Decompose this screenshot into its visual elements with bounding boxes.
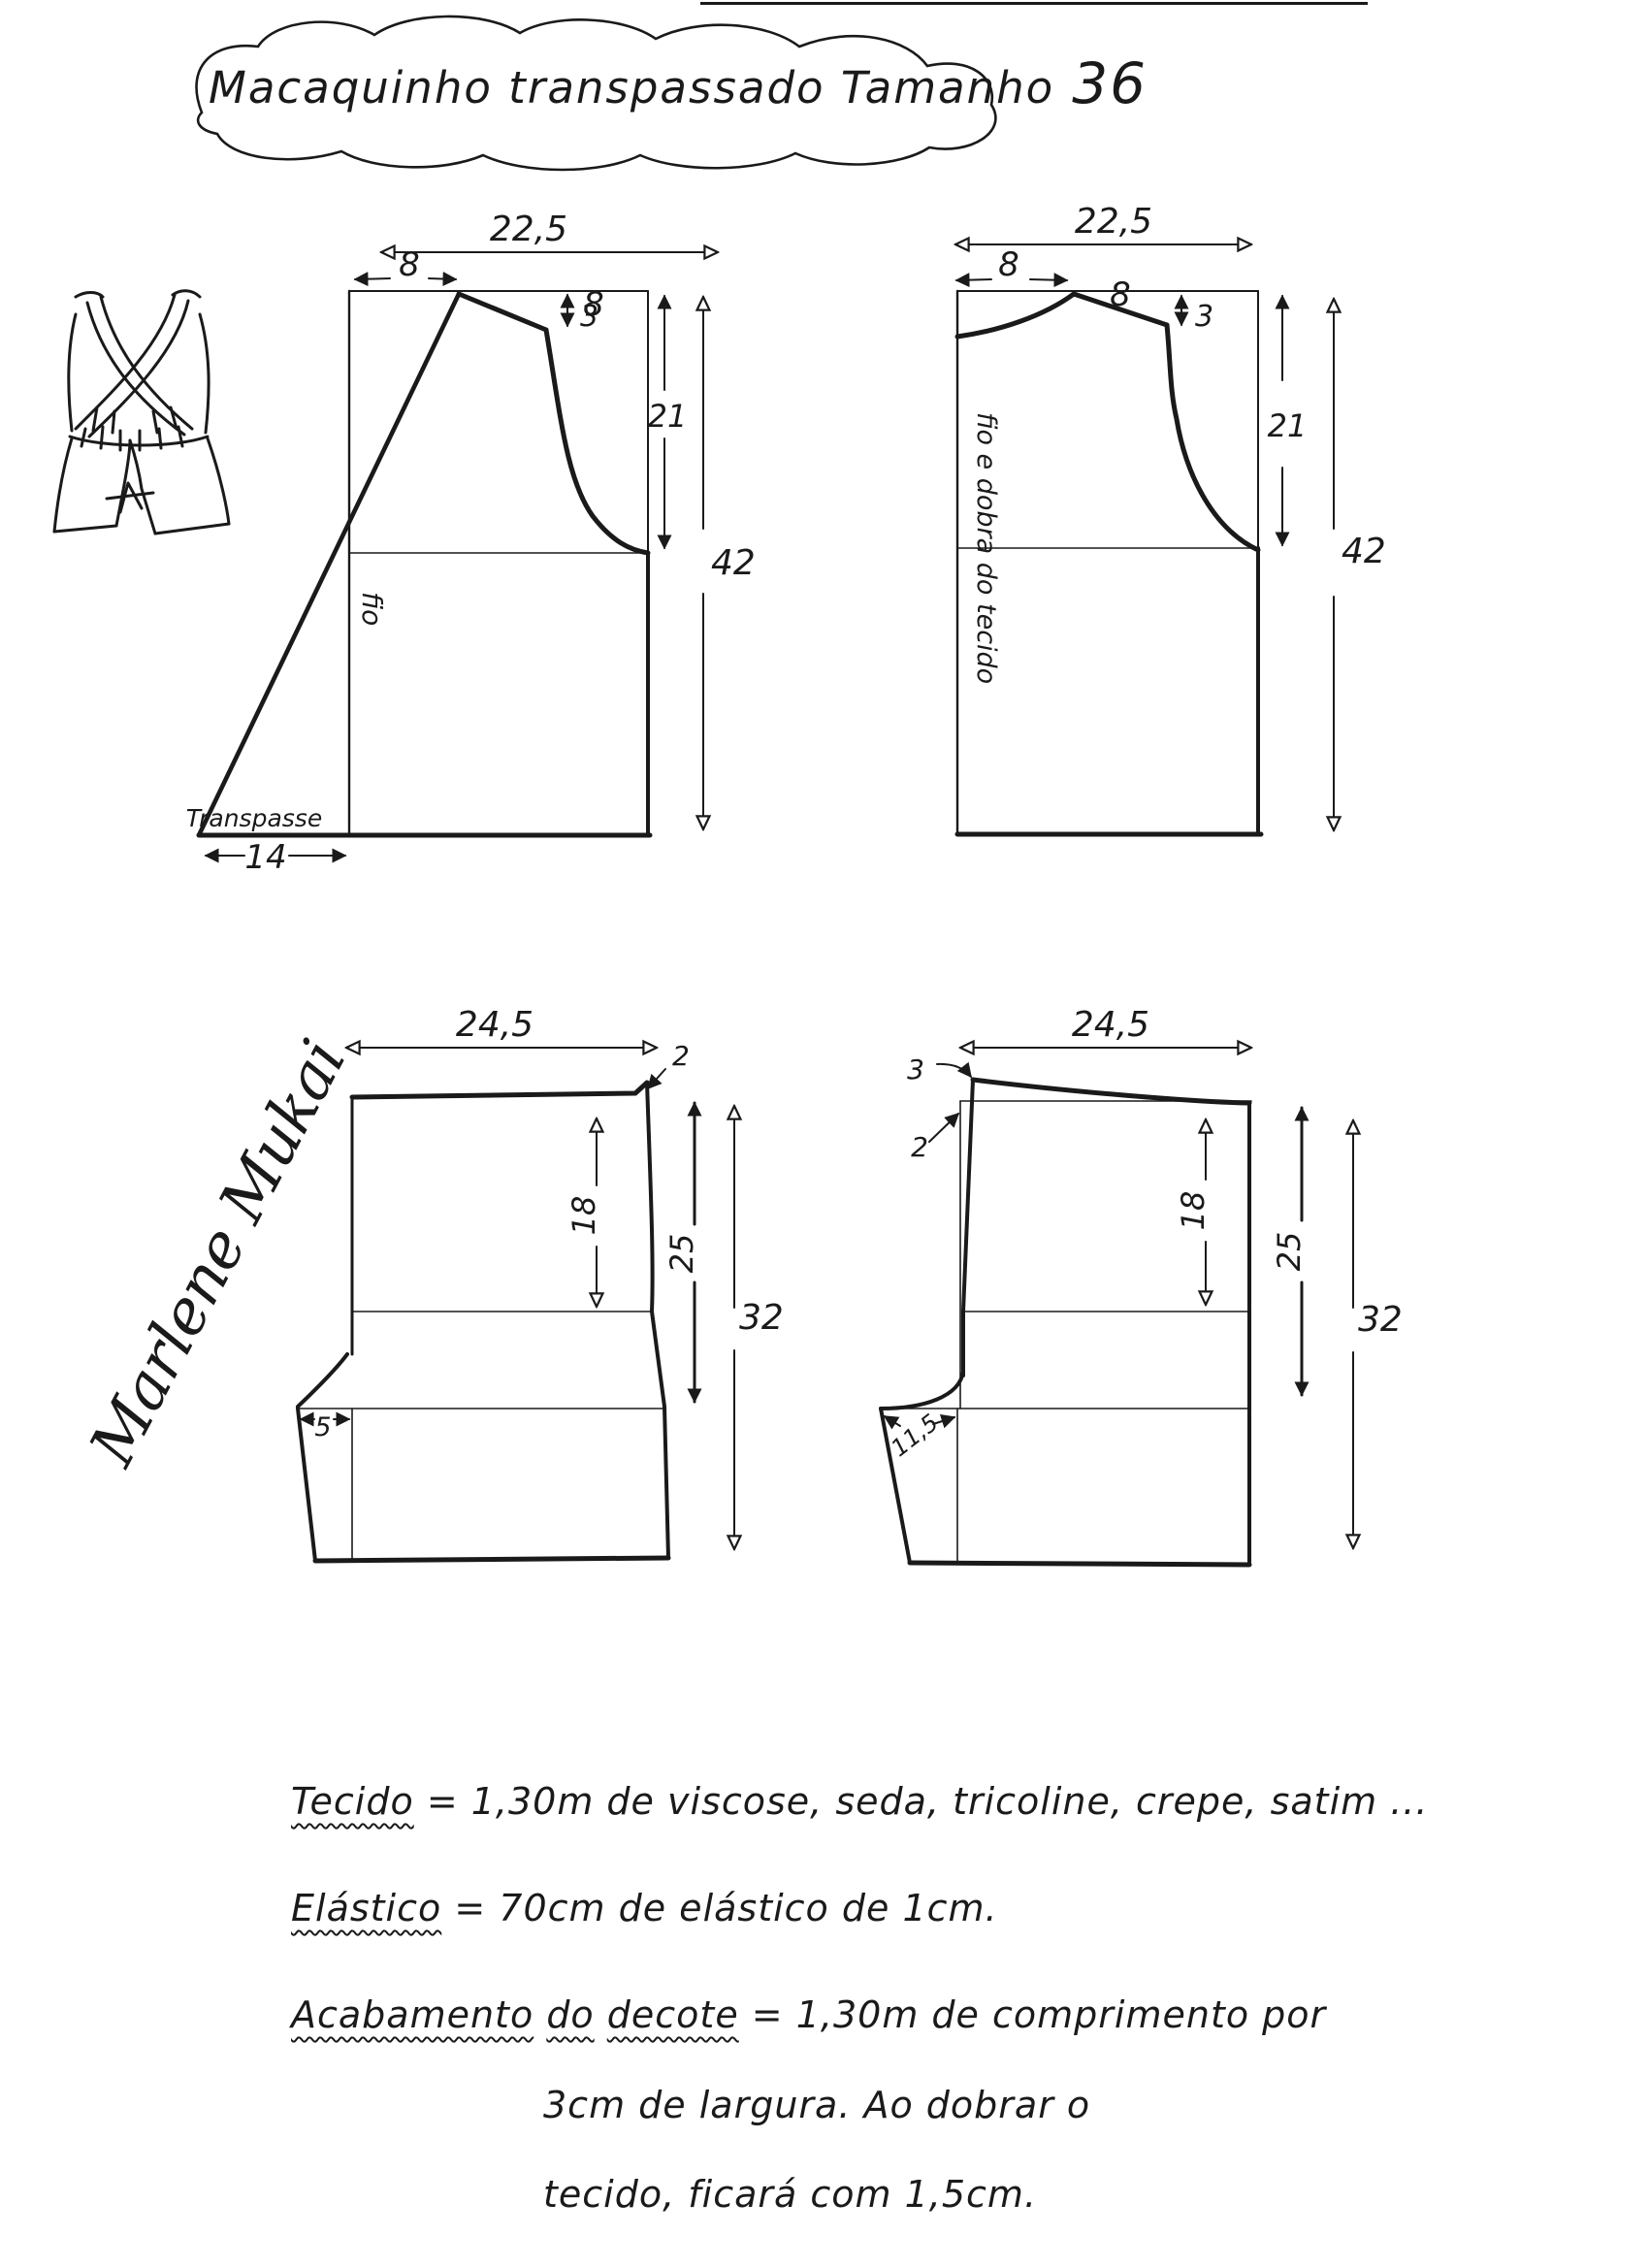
back-bodice-fold-label: fio e dobra do tecido <box>971 412 1001 684</box>
note-neckline-text: = 1,30m de comprimento por <box>752 1993 1326 2036</box>
shorts-front-diagram <box>298 1048 734 1561</box>
front-bodice-grainline-label: fio <box>356 592 388 626</box>
note-neckline-finish-cont1: 3cm de largura. Ao dobrar o <box>543 2084 1090 2126</box>
note-fabric: Tecido = 1,30m de viscose, seda, tricoli… <box>291 1780 1428 1823</box>
note-neckline-finish-cont2: tecido, ficará com 1,5cm. <box>543 2173 1037 2216</box>
back-bodice-length-label: 42 <box>1342 532 1386 571</box>
shorts-back-diagram <box>881 1048 1353 1565</box>
shorts-back-crotch-extension-label: 11,5 <box>886 1409 943 1462</box>
front-bodice-length-label: 42 <box>711 543 756 583</box>
note-neckline-keyword-3: decote <box>607 1993 739 2036</box>
romper-sketch <box>54 291 229 534</box>
shorts-front-side-length-label: 25 <box>663 1234 700 1274</box>
back-bodice-shoulder-slope-label: 8 <box>1110 275 1131 314</box>
back-bodice-diagram <box>955 244 1334 834</box>
front-bodice-shoulder-width-label: 8 <box>399 245 420 284</box>
front-bodice-diagram <box>199 252 718 856</box>
shorts-front-length-label: 32 <box>739 1298 784 1338</box>
shorts-front-hip-depth-label: 18 <box>566 1196 602 1236</box>
page-title-size-number: 36 <box>1054 50 1148 116</box>
shorts-back-side-length-label: 25 <box>1271 1232 1308 1272</box>
front-bodice-armhole-depth-label: 21 <box>648 398 688 435</box>
shorts-back-rise-label: 3 <box>907 1053 924 1085</box>
front-bodice-width-label: 22,5 <box>490 210 567 249</box>
note-elastic-keyword: Elástico <box>291 1887 441 1929</box>
note-neckline-cont2-text: tecido, ficará com 1,5cm. <box>543 2173 1037 2216</box>
shorts-back-hip-depth-label: 18 <box>1175 1191 1212 1231</box>
shorts-back-length-label: 32 <box>1358 1300 1403 1340</box>
back-bodice-width-label: 22,5 <box>1075 202 1152 242</box>
front-bodice-overlap-label: Transpasse <box>186 804 322 832</box>
back-bodice-shoulder-width-label: 8 <box>998 245 1019 284</box>
shorts-front-side-rise-label: 2 <box>672 1040 690 1072</box>
shorts-back-side-offset-label: 2 <box>911 1131 928 1163</box>
front-bodice-shoulder-drop-label: 3 <box>580 300 598 334</box>
note-elastic-text: = 70cm de elástico de 1cm. <box>454 1887 997 1929</box>
note-elastic: Elástico = 70cm de elástico de 1cm. <box>291 1887 998 1929</box>
shorts-front-width-label: 24,5 <box>456 1005 533 1045</box>
shorts-front-crotch-extension-label: 5 <box>314 1412 331 1442</box>
note-fabric-text: = 1,30m de viscose, seda, tricoline, cre… <box>427 1780 1429 1823</box>
scanned-sewing-pattern-page: 22,5 8 8 3 21 42 fio Transpasse 14 <box>0 0 1649 2268</box>
back-bodice-shoulder-drop-label: 3 <box>1195 300 1213 334</box>
note-fabric-keyword: Tecido <box>291 1780 414 1823</box>
note-neckline-cont1-text: 3cm de largura. Ao dobrar o <box>543 2084 1090 2126</box>
back-bodice-armhole-depth-label: 21 <box>1268 407 1308 444</box>
note-neckline-keyword-2: do <box>546 1993 594 2036</box>
shorts-back-width-label: 24,5 <box>1072 1005 1149 1045</box>
page-title: Macaquinho transpassado Tamanho36 <box>209 50 994 116</box>
note-neckline-finish: Acabamento do decote = 1,30m de comprime… <box>291 1993 1326 2036</box>
note-neckline-keyword-1: Acabamento <box>291 1993 533 2036</box>
front-bodice-overlap-width-label: 14 <box>244 838 286 877</box>
page-title-text: Macaquinho transpassado Tamanho <box>209 62 1054 113</box>
